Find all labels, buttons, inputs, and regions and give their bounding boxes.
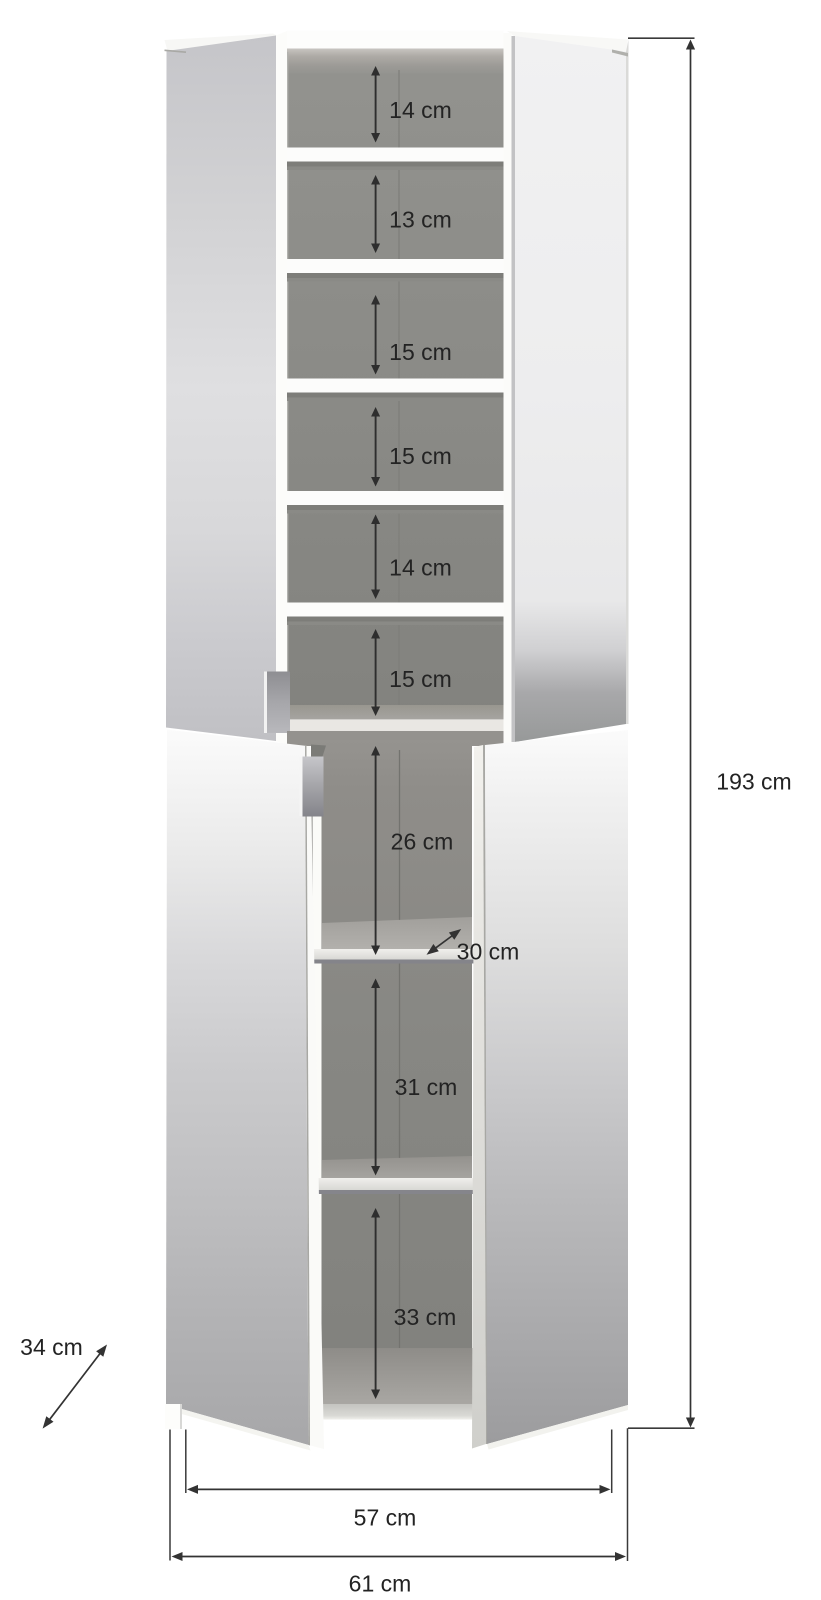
svg-text:13 cm: 13 cm (389, 207, 452, 233)
svg-text:14 cm: 14 cm (389, 555, 452, 581)
svg-text:26 cm: 26 cm (391, 829, 454, 855)
svg-text:14 cm: 14 cm (389, 97, 452, 123)
svg-text:31 cm: 31 cm (395, 1074, 458, 1100)
svg-text:34 cm: 34 cm (20, 1334, 83, 1360)
svg-text:15 cm: 15 cm (389, 443, 452, 469)
svg-text:30 cm: 30 cm (457, 939, 520, 965)
svg-text:61 cm: 61 cm (349, 1571, 412, 1597)
svg-text:193 cm: 193 cm (716, 769, 791, 795)
svg-text:57 cm: 57 cm (354, 1505, 417, 1531)
svg-text:33 cm: 33 cm (394, 1304, 457, 1330)
svg-text:15 cm: 15 cm (389, 339, 452, 365)
svg-text:15 cm: 15 cm (389, 666, 452, 692)
